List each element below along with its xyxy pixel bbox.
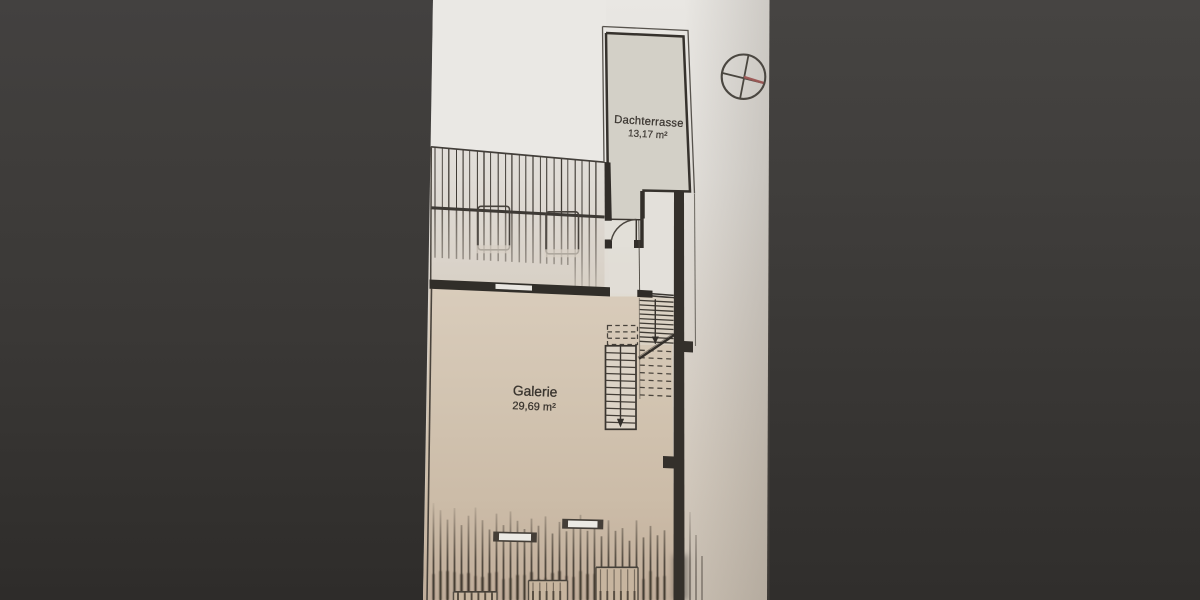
svg-text:Galerie: Galerie <box>513 383 558 400</box>
svg-text:29,69 m²: 29,69 m² <box>512 400 556 414</box>
